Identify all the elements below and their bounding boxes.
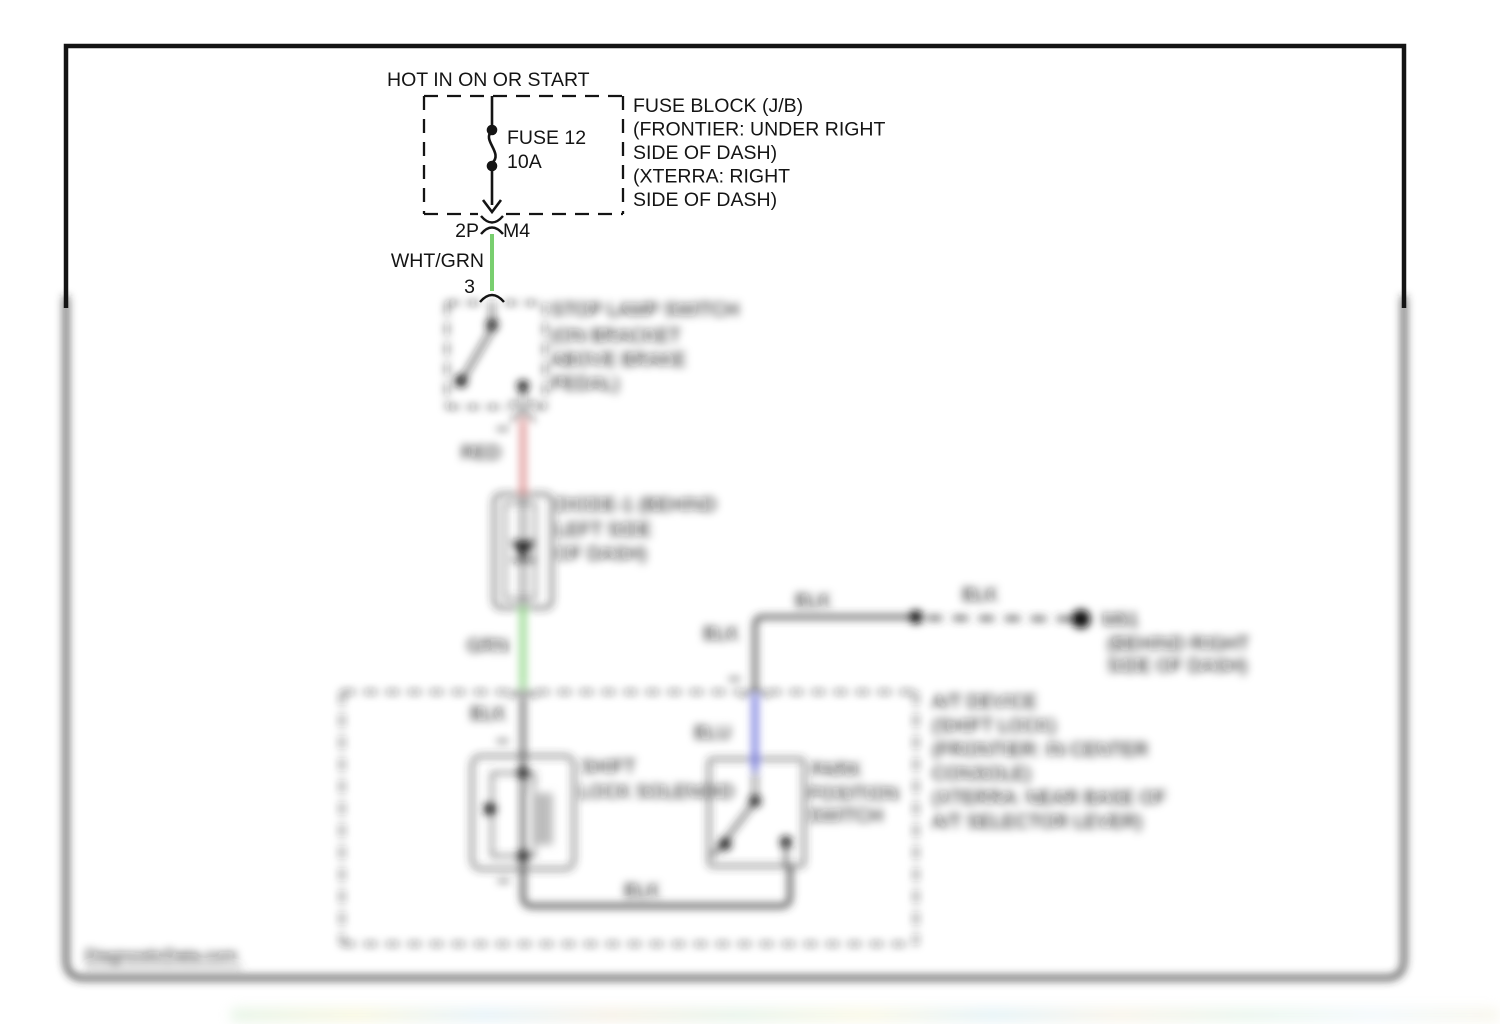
svg-text:A/T DEVICE: A/T DEVICE bbox=[932, 692, 1037, 713]
watermark: DiagnosticData.com bbox=[85, 946, 237, 965]
ground-note: (BEHIND RIGHT SIDE OF DASH) bbox=[1107, 634, 1250, 677]
at-device-note: A/T DEVICE (SHIFT LOCK) (FRONTIER: IN CE… bbox=[932, 692, 1166, 833]
terminal-3-label: 3 bbox=[464, 276, 475, 298]
svg-text:STOP LAMP SWITCH: STOP LAMP SWITCH bbox=[551, 300, 739, 321]
stop-lamp-switch-note: STOP LAMP SWITCH (ON BRACKET ABOVE BRAKE… bbox=[551, 300, 739, 395]
diode-symbol-icon bbox=[511, 541, 535, 559]
svg-text:PEDAL): PEDAL) bbox=[551, 374, 620, 395]
svg-text:SIDE OF DASH): SIDE OF DASH) bbox=[633, 142, 777, 164]
svg-text:(FRONTIER: IN CENTER: (FRONTIER: IN CENTER bbox=[932, 740, 1148, 761]
power-source-label: HOT IN ON OR START bbox=[387, 69, 590, 91]
blu-wire-label: BLU bbox=[694, 723, 731, 744]
wiring-diagram: STOP LAMP SWITCH (ON BRACKET ABOVE BRAKE… bbox=[0, 0, 1500, 1024]
stop-lamp-switch-box bbox=[447, 301, 545, 429]
red-wire-label: RED bbox=[461, 443, 501, 464]
fuse-name-label: FUSE 12 bbox=[507, 127, 586, 149]
svg-text:(XTERRA: RIGHT: (XTERRA: RIGHT bbox=[633, 166, 790, 188]
park-switch-label: PARK POSITION SWITCH bbox=[808, 760, 899, 827]
svg-text:(FRONTIER: UNDER RIGHT: (FRONTIER: UNDER RIGHT bbox=[633, 119, 885, 141]
svg-text:SIDE OF DASH): SIDE OF DASH) bbox=[633, 189, 777, 211]
inline-connector-icon bbox=[481, 216, 503, 234]
ground-id-label: M61 bbox=[1102, 610, 1139, 631]
solenoid-label: SHIFT LOCK SOLENOID bbox=[579, 757, 734, 803]
blurred-page-content-strip bbox=[230, 1008, 1500, 1022]
svg-text:DIODE-1 (BEHIND: DIODE-1 (BEHIND bbox=[556, 495, 716, 516]
wht-grn-wire-label: WHT/GRN bbox=[391, 250, 484, 272]
blk-wire-label: BLK bbox=[624, 881, 660, 902]
switch-arm bbox=[462, 321, 497, 380]
diode-note: DIODE-1 (BEHIND LEFT SIDE OF DASH) bbox=[556, 495, 716, 565]
inline-connector-icon bbox=[512, 401, 534, 421]
wiring-diagram-page: STOP LAMP SWITCH (ON BRACKET ABOVE BRAKE… bbox=[0, 0, 1500, 1024]
svg-text:PARK: PARK bbox=[811, 760, 862, 781]
svg-text:CONSOLE): CONSOLE) bbox=[932, 764, 1031, 785]
svg-text:SWITCH: SWITCH bbox=[808, 806, 883, 827]
svg-text:(SHIFT LOCK): (SHIFT LOCK) bbox=[932, 716, 1056, 737]
svg-text:(ON BRACKET: (ON BRACKET bbox=[551, 326, 681, 347]
svg-text:OF DASH): OF DASH) bbox=[556, 544, 647, 565]
park-position-switch-box bbox=[709, 759, 804, 866]
switch-arm bbox=[713, 799, 757, 856]
blk-wire-label: BLK bbox=[795, 591, 831, 612]
svg-text:POSITION: POSITION bbox=[808, 784, 899, 805]
grn-wire-label: GRN bbox=[467, 636, 509, 657]
blk-wire-label: BLK bbox=[962, 585, 998, 606]
blk-wire-to-ground bbox=[755, 617, 913, 689]
ground-m61-icon bbox=[1072, 610, 1091, 629]
fuse-rating-label: 10A bbox=[507, 151, 542, 173]
shift-lock-solenoid-box bbox=[472, 756, 574, 869]
fuse-symbol-icon bbox=[483, 96, 501, 212]
connector-pins-label: 2P bbox=[455, 220, 479, 242]
svg-text:SIDE OF DASH): SIDE OF DASH) bbox=[1107, 656, 1247, 677]
svg-text:A/T SELECTOR LEVER): A/T SELECTOR LEVER) bbox=[932, 812, 1142, 833]
svg-text:SHIFT: SHIFT bbox=[581, 757, 636, 778]
fuse-block-note: FUSE BLOCK (J/B) (FRONTIER: UNDER RIGHT … bbox=[633, 95, 885, 211]
solenoid-core bbox=[534, 793, 553, 845]
svg-text:FUSE BLOCK (J/B): FUSE BLOCK (J/B) bbox=[633, 95, 803, 117]
svg-text:LOCK SOLENOID: LOCK SOLENOID bbox=[579, 782, 734, 803]
connector-id-label: M4 bbox=[503, 220, 530, 242]
sharp-region: HOT IN ON OR START FUSE 12 10A FUSE BLOC… bbox=[66, 46, 1404, 308]
svg-text:(BEHIND RIGHT: (BEHIND RIGHT bbox=[1107, 634, 1250, 655]
blk-wire-label: BLK bbox=[703, 624, 739, 645]
blk-wire-dashed bbox=[927, 618, 1066, 619]
blk-wire-label: BLK bbox=[470, 704, 506, 725]
junction-dot bbox=[909, 610, 923, 624]
svg-text:(XTERRA: NEAR BASE OF: (XTERRA: NEAR BASE OF bbox=[932, 788, 1166, 809]
diode-box bbox=[494, 494, 552, 608]
blurred-region: STOP LAMP SWITCH (ON BRACKET ABOVE BRAKE… bbox=[66, 296, 1404, 978]
inline-connector-icon bbox=[480, 295, 504, 302]
svg-text:LEFT SIDE: LEFT SIDE bbox=[556, 520, 652, 541]
svg-text:ABOVE BRAKE: ABOVE BRAKE bbox=[551, 350, 686, 371]
